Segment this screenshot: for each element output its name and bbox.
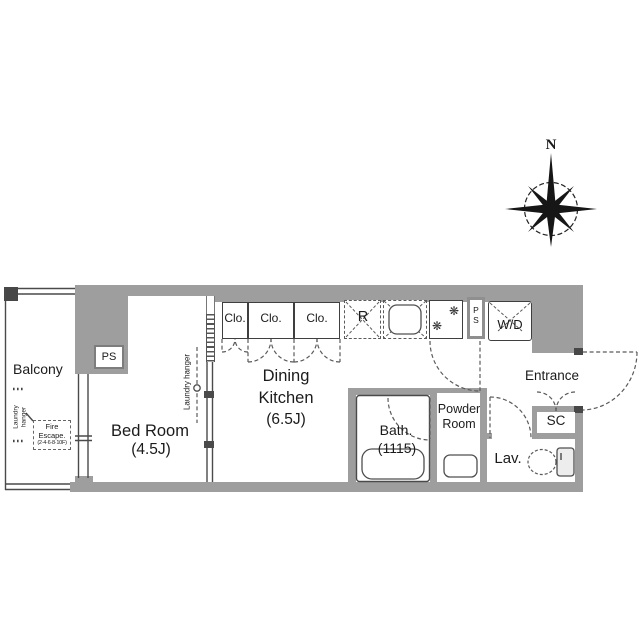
kitchen-door-swing	[430, 341, 480, 391]
powder-room-label-2: Room	[442, 417, 475, 431]
kitchen-sink-counter	[383, 300, 427, 339]
pipe-space-kitchen: P S	[467, 297, 485, 339]
balcony-label: Balcony	[13, 361, 63, 377]
wall-powder-lav	[480, 388, 487, 492]
dining-kitchen-label-1: Dining	[263, 367, 310, 386]
wall-bottom	[70, 482, 583, 492]
partition-gap	[206, 296, 215, 314]
wall-stub-bottom-left	[75, 476, 93, 492]
pipe-space-bedroom-label: PS	[102, 351, 117, 363]
bath-label: Bath.	[380, 422, 413, 438]
bath-size-label: (1115)	[378, 440, 416, 456]
dining-kitchen-label-2: Kitchen	[258, 389, 313, 408]
bath-floor	[356, 395, 430, 482]
fire-escape-label: Fire Escape. (2·4·6·8·10F)	[33, 420, 71, 450]
entrance-door-frame-top	[574, 348, 583, 355]
wall-top-right-block	[532, 285, 583, 353]
compass-north-label: N	[546, 137, 557, 154]
closet-label: Clo.	[224, 311, 245, 325]
bedroom-size-label: (4.5J)	[131, 441, 171, 459]
powder-room-label-1: Powder	[438, 402, 480, 416]
dining-kitchen-size-label: (6.5J)	[266, 411, 306, 429]
entrance-label: Entrance	[525, 368, 579, 383]
burner-icon: ❋	[432, 320, 442, 332]
compass-rose-icon	[505, 153, 597, 247]
wall-right	[575, 413, 583, 492]
lav-door-swing	[490, 397, 531, 438]
entrance-door-frame-bottom	[574, 406, 583, 413]
refrigerator-label: R	[358, 309, 368, 325]
shoe-closet-label: SC	[547, 413, 566, 428]
bedroom-label: Bed Room	[111, 422, 189, 441]
wall-top-bedroom	[128, 285, 214, 296]
balcony-pillar	[4, 287, 18, 301]
bedroom-laundry-hanger-label: Laundry hanger	[183, 354, 192, 410]
washer-dryer-label: W/D	[497, 317, 522, 332]
pipe-space-bedroom: PS	[94, 345, 124, 369]
floor-plan: ❋ ❋ P S PS	[0, 0, 639, 640]
burner-icon: ❋	[449, 305, 459, 317]
closet-label: Clo.	[260, 311, 281, 325]
partition-hatch	[206, 314, 215, 362]
lavatory-label: Lav.	[494, 450, 521, 467]
pipe-space-label-s: S	[470, 316, 482, 326]
entrance-door-swing	[583, 352, 637, 410]
closet-label: Clo.	[306, 311, 327, 325]
stove: ❋ ❋	[429, 300, 463, 339]
balcony-laundry-hanger-label: Laundry hanger	[13, 405, 28, 429]
